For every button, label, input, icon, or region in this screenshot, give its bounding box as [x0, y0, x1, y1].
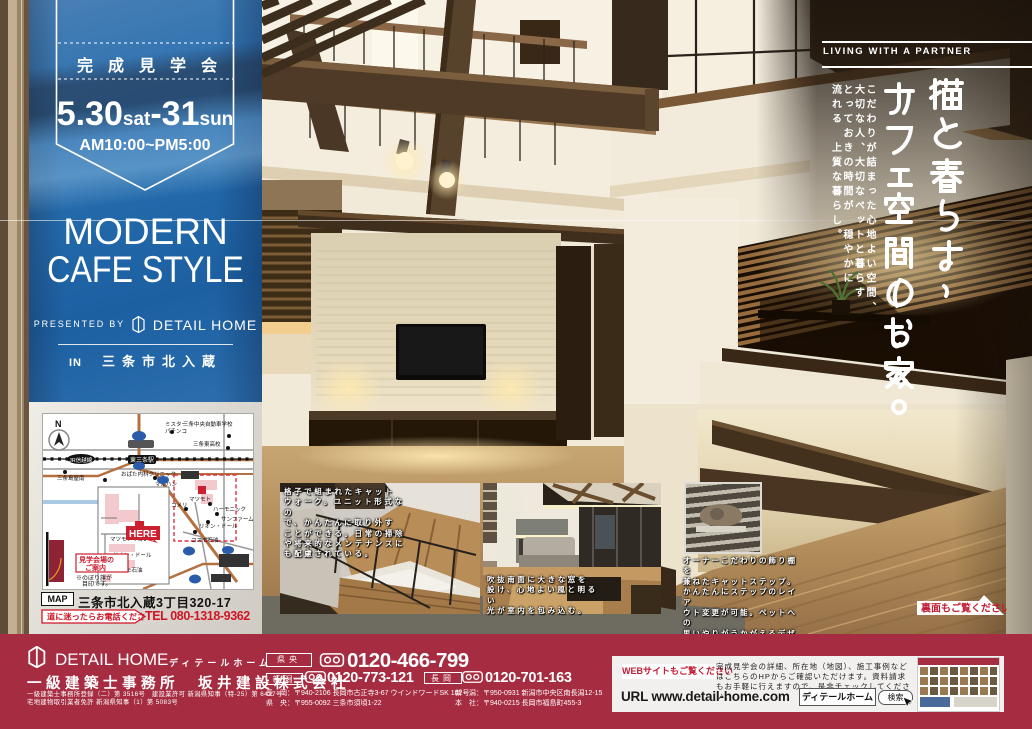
svg-text:JR信越線: JR信越線 — [69, 456, 93, 464]
svg-text:パチンコ: パチンコ — [165, 428, 187, 435]
svg-text:見学会場の: 見学会場の — [78, 555, 114, 564]
svg-text:リオン・ドール: リオン・ドール — [199, 523, 238, 530]
svg-text:コメリ: コメリ — [171, 502, 188, 509]
svg-text:三条中央自動車学校: 三条中央自動車学校 — [183, 420, 233, 428]
svg-text:三条島屋南: 三条島屋南 — [57, 474, 85, 482]
svg-text:目印です。: 目印です。 — [82, 581, 111, 588]
svg-text:おぱた内科クリニック: おぱた内科クリニック — [121, 470, 176, 478]
svg-text:ハーモニック: ハーモニック — [213, 506, 246, 513]
svg-text:マツモト: マツモト — [189, 496, 211, 503]
svg-text:三条東高校: 三条東高校 — [193, 440, 221, 448]
svg-text:コスモ石油: コスモ石油 — [191, 536, 219, 544]
svg-text:HERE: HERE — [129, 529, 157, 540]
svg-text:サンファーム: サンファーム — [221, 516, 253, 523]
svg-text:裏面もご覧ください。: 裏面もご覧ください。 — [920, 602, 1007, 615]
svg-text:道に迷ったらお電話ください: 道に迷ったらお電話ください — [47, 612, 146, 622]
svg-text:ご案内: ご案内 — [85, 563, 106, 572]
svg-text:N: N — [55, 419, 62, 429]
svg-text:※のぼり旗が: ※のぼり旗が — [76, 574, 112, 582]
